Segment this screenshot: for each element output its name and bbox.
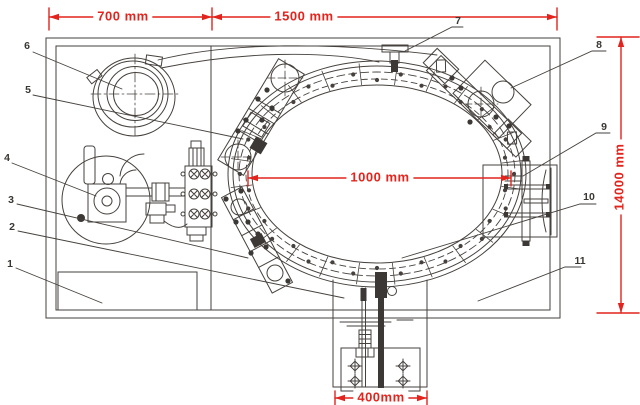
station-bracket-lower-left — [221, 187, 292, 293]
dim-label-700mm: 700 mm — [93, 10, 152, 25]
callout-label-7: 7 — [455, 16, 461, 27]
coil-feeder — [87, 54, 179, 136]
callout-label-5: 5 — [25, 85, 31, 96]
callout-label-3: 3 — [8, 195, 14, 206]
callout-label-8: 8 — [596, 40, 602, 51]
callout-label-2: 2 — [9, 222, 15, 233]
dim-label-400mm: 400mm — [353, 391, 408, 405]
dim-label-14000mm: 14000 mm — [613, 140, 628, 215]
callout-label-4: 4 — [4, 153, 10, 164]
callout-label-11: 11 — [574, 256, 585, 267]
valve-block — [181, 141, 217, 241]
station-bracket-upper-right — [423, 48, 531, 157]
control-box — [58, 272, 197, 310]
side-support-assembly — [483, 156, 557, 246]
dim-label-1500mm: 1500 mm — [270, 10, 337, 25]
machine-layout-drawing: 700 mm 1500 mm 1000 mm 14000 mm 400mm 1 … — [0, 0, 640, 405]
base-support-assembly — [333, 272, 427, 391]
support-column — [375, 272, 387, 298]
callout-label-10: 10 — [583, 192, 595, 203]
machine-line-art — [0, 0, 640, 405]
callout-label-9: 9 — [601, 122, 607, 133]
callout-label-1: 1 — [7, 259, 13, 270]
callout-label-6: 6 — [24, 41, 30, 52]
dim-label-1000mm: 1000 mm — [346, 171, 413, 186]
station-bracket-upper-left — [218, 59, 304, 176]
